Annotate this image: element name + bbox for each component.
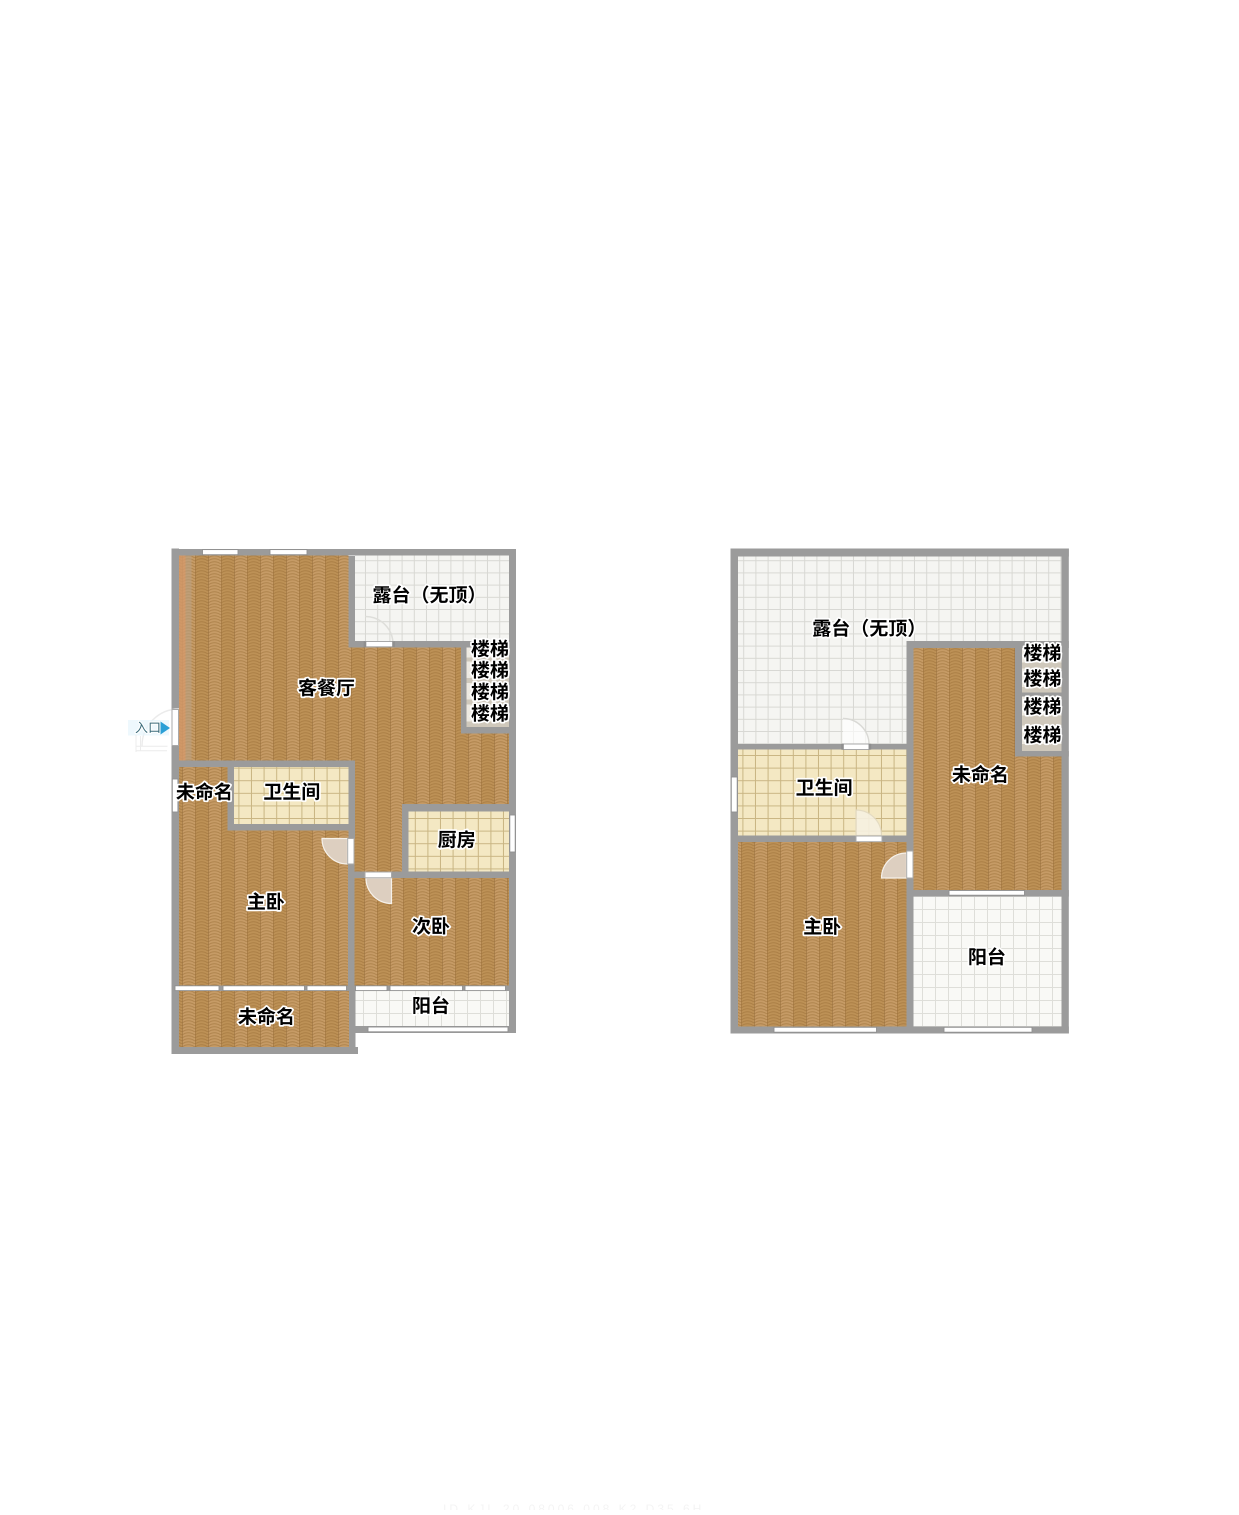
svg-text:ID KJL 20 08006 008 K2 D35 6H: ID KJL 20 08006 008 K2 D35 6H	[443, 1502, 704, 1510]
